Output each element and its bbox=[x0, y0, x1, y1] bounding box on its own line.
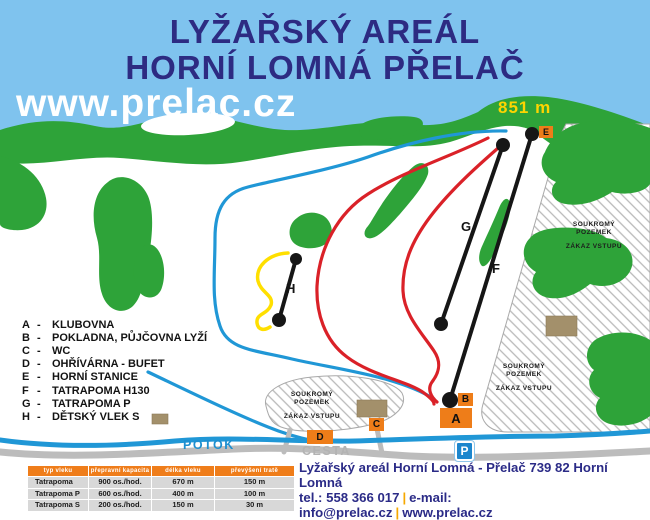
legend-item: C-WC bbox=[22, 344, 207, 357]
column-header: délka vleku bbox=[152, 466, 214, 476]
table-cell: 100 m bbox=[215, 489, 294, 500]
lifts-table: typ vleku přepravní kapacita délka vleku… bbox=[28, 466, 293, 512]
legend-label: TATRAPOMA H130 bbox=[52, 385, 150, 397]
legend-item: E-HORNÍ STANICE bbox=[22, 371, 207, 384]
legend-dash: - bbox=[37, 345, 52, 357]
column-header: přepravní kapacita bbox=[89, 466, 151, 476]
map-legend: A-KLUBOVNA B-POKLADNA, PŮJČOVNA LYŽÍ C-W… bbox=[22, 318, 207, 424]
legend-item: B-POKLADNA, PŮJČOVNA LYŽÍ bbox=[22, 331, 207, 344]
table-cell: 200 os./hod. bbox=[89, 500, 151, 511]
legend-dash: - bbox=[37, 398, 52, 410]
lift-label-g: G bbox=[461, 219, 471, 234]
private-area-line: ZÁKAZ VSTUPU bbox=[548, 243, 640, 251]
legend-dash: - bbox=[37, 332, 52, 344]
lift-station-dot bbox=[525, 127, 539, 141]
table-row: Tatrapoma P 600 os./hod. 400 m 100 m bbox=[28, 489, 293, 500]
table-cell: Tatrapoma S bbox=[28, 500, 88, 511]
separator: | bbox=[399, 490, 409, 505]
private-area-line: ZÁKAZ VSTUPU bbox=[266, 413, 358, 421]
private-area-text: SOUKROMÝ POZEMEK ZÁKAZ VSTUPU bbox=[266, 391, 358, 421]
title-line2: HORNÍ LOMNÁ PŘELAČ bbox=[0, 50, 650, 86]
legend-label: POKLADNA, PŮJČOVNA LYŽÍ bbox=[52, 332, 207, 344]
lift-station-dot bbox=[434, 317, 448, 331]
legend-key: F bbox=[22, 385, 37, 397]
private-area-line: POZEMEK bbox=[478, 371, 570, 379]
table-cell: 30 m bbox=[215, 500, 294, 511]
legend-dash: - bbox=[37, 358, 52, 370]
legend-label: TATRAPOMA P bbox=[52, 398, 131, 410]
elevation-label: 851 m bbox=[498, 98, 551, 118]
building bbox=[357, 400, 387, 417]
map-marker-d: D bbox=[307, 430, 333, 444]
legend-key: G bbox=[22, 398, 37, 410]
private-area-line: SOUKROMÝ bbox=[548, 221, 640, 229]
lift-station-dot bbox=[272, 313, 286, 327]
legend-item: A-KLUBOVNA bbox=[22, 318, 207, 331]
legend-key: C bbox=[22, 345, 37, 357]
lift-station-dot bbox=[442, 392, 458, 408]
private-area-line: ZÁKAZ VSTUPU bbox=[478, 385, 570, 393]
lift-label-f: F bbox=[492, 261, 500, 276]
private-area-text: SOUKROMÝ POZEMEK ZÁKAZ VSTUPU bbox=[548, 221, 640, 251]
column-header: typ vleku bbox=[28, 466, 88, 476]
table-cell: 150 m bbox=[152, 500, 214, 511]
title-line1: LYŽAŘSKÝ AREÁL bbox=[0, 14, 650, 50]
legend-key: A bbox=[22, 319, 37, 331]
stream-label: POTOK bbox=[183, 438, 235, 452]
map-marker-c: C bbox=[369, 418, 384, 431]
legend-label: OHŘÍVÁRNA - BUFET bbox=[52, 358, 165, 370]
table-cell: 400 m bbox=[152, 489, 214, 500]
contact-details: tel.: 558 366 017|e-mail: info@prelac.cz… bbox=[299, 490, 647, 520]
legend-dash: - bbox=[37, 319, 52, 331]
website-text: www.prelac.cz bbox=[16, 82, 296, 126]
legend-dash: - bbox=[37, 371, 52, 383]
lifts-table-header: typ vleku přepravní kapacita délka vleku… bbox=[28, 466, 293, 476]
private-area-line: POZEMEK bbox=[266, 399, 358, 407]
legend-dash: - bbox=[37, 411, 52, 423]
legend-label: WC bbox=[52, 345, 70, 357]
lift-station-dot bbox=[496, 138, 510, 152]
legend-item: G-TATRAPOMA P bbox=[22, 397, 207, 410]
legend-label: KLUBOVNA bbox=[52, 319, 114, 331]
private-area-text: SOUKROMÝ POZEMEK ZÁKAZ VSTUPU bbox=[478, 363, 570, 393]
separator: | bbox=[392, 505, 402, 520]
map-marker-a: A bbox=[440, 408, 472, 428]
legend-key: E bbox=[22, 371, 37, 383]
table-row: Tatrapoma H130 900 os./hod. 670 m 150 m bbox=[28, 477, 293, 488]
road-label: CESTA bbox=[302, 444, 351, 458]
legend-key: D bbox=[22, 358, 37, 370]
contact-website: www.prelac.cz bbox=[402, 505, 492, 520]
private-area-line: SOUKROMÝ bbox=[478, 363, 570, 371]
table-cell: 900 os./hod. bbox=[89, 477, 151, 488]
page-title: LYŽAŘSKÝ AREÁL HORNÍ LOMNÁ PŘELAČ bbox=[0, 14, 650, 86]
building bbox=[546, 316, 577, 336]
table-cell: 670 m bbox=[152, 477, 214, 488]
private-area-line: SOUKROMÝ bbox=[266, 391, 358, 399]
private-area-line: POZEMEK bbox=[548, 229, 640, 237]
table-cell: Tatrapoma H130 bbox=[28, 477, 88, 488]
contact-address: Lyžařský areál Horní Lomná - Přelač 739 … bbox=[299, 460, 647, 490]
parking-icon: P bbox=[455, 441, 474, 461]
column-header: převýšení tratě bbox=[215, 466, 294, 476]
legend-key: H bbox=[22, 411, 37, 423]
contact-block: Lyžařský areál Horní Lomná - Přelač 739 … bbox=[299, 460, 647, 520]
lift-station-dot bbox=[290, 253, 302, 265]
lift-label-h: H bbox=[286, 281, 295, 296]
table-cell: 150 m bbox=[215, 477, 294, 488]
map-marker-e: E bbox=[539, 126, 553, 138]
legend-label: HORNÍ STANICE bbox=[52, 371, 138, 383]
legend-key: B bbox=[22, 332, 37, 344]
legend-item: H-DĚTSKÝ VLEK S bbox=[22, 410, 207, 423]
legend-item: D-OHŘÍVÁRNA - BUFET bbox=[22, 358, 207, 371]
legend-item: F-TATRAPOMA H130 bbox=[22, 384, 207, 397]
table-row: Tatrapoma S 200 os./hod. 150 m 30 m bbox=[28, 500, 293, 511]
table-cell: Tatrapoma P bbox=[28, 489, 88, 500]
legend-label: DĚTSKÝ VLEK S bbox=[52, 411, 139, 423]
ski-area-poster: LYŽAŘSKÝ AREÁL HORNÍ LOMNÁ PŘELAČ www.pr… bbox=[0, 0, 650, 520]
map-marker-b: B bbox=[458, 393, 473, 406]
contact-phone: tel.: 558 366 017 bbox=[299, 490, 399, 505]
table-cell: 600 os./hod. bbox=[89, 489, 151, 500]
legend-dash: - bbox=[37, 385, 52, 397]
